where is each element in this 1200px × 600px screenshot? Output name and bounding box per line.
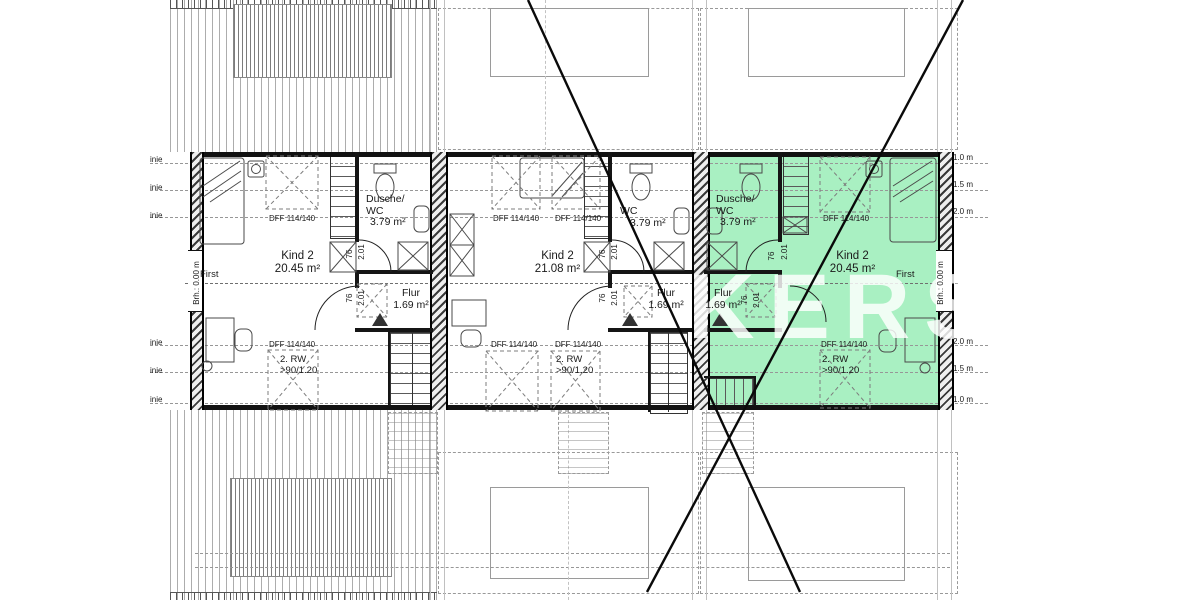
door-height-label: 2.01 <box>610 280 620 316</box>
breast-height-right: Brh.: 0.00 m <box>936 253 946 313</box>
hall-name: Flur <box>702 288 744 300</box>
bath-area: 3.79 m² <box>620 218 666 230</box>
bath-line1: Dusche/ <box>716 194 756 206</box>
room-name: Kind 2 <box>800 250 905 263</box>
ridge-label-right: First <box>896 270 914 281</box>
sink-left <box>414 206 429 232</box>
skylight-middle-top-2 <box>552 156 600 209</box>
skylight-middle-bottom-1 <box>486 351 538 411</box>
roof-height-label: 1.5 m <box>953 180 973 189</box>
room-name: Kind 2 <box>245 250 350 263</box>
room-label-middle: Kind 2 21.08 m² <box>505 250 610 275</box>
room-name: Kind 2 <box>505 250 610 263</box>
desk-left <box>202 318 252 371</box>
room-label-left: Kind 2 20.45 m² <box>245 250 350 275</box>
hall-label-left: Flur 1.69 m² <box>388 288 434 311</box>
breast-height-left: Brh.: 0.00 m <box>192 253 202 313</box>
bath-line1: Dusche/ <box>366 194 406 206</box>
bath-label-right: Dusche/ WC 3.79 m² <box>716 194 756 229</box>
room-area: 21.08 m² <box>505 263 610 276</box>
hall-label-right: Flur 1.69 m² <box>702 288 744 311</box>
roof-line-label: inie <box>150 155 178 164</box>
skylight-right-top <box>820 157 870 212</box>
sink-middle <box>674 208 689 234</box>
rw-line1: 2. RW <box>822 355 859 366</box>
closet-right <box>783 217 807 233</box>
roof-line-label: inie <box>150 338 178 347</box>
roof-height-label: 1.5 m <box>953 364 973 373</box>
room-area: 20.45 m² <box>800 263 905 276</box>
shower-left <box>398 242 428 270</box>
dff-label: DFF 114/140 <box>262 214 322 223</box>
hall-area: 1.69 m² <box>388 300 434 312</box>
rw-line1: 2. RW <box>556 355 593 366</box>
roof-line-label: inie <box>150 183 178 192</box>
rw-line2: >90/1.20 <box>280 366 317 377</box>
door-height-label: 2.01 <box>610 234 620 270</box>
desk-middle <box>452 300 486 347</box>
floor-plan: KERS Kind 2 20.45 m² Kind 2 21.08 m² Kin… <box>0 0 1200 600</box>
door-width-label: 76 <box>345 280 355 316</box>
bed-left <box>200 158 244 244</box>
escape-window-label-left: 2. RW >90/1.20 <box>280 355 317 376</box>
escape-window-label-right: 2. RW >90/1.20 <box>822 355 859 376</box>
door-height-label: 2.01 <box>780 234 790 270</box>
dff-label: DFF 114/140 <box>484 340 544 349</box>
hall-name: Flur <box>388 288 434 300</box>
door-width-label: 76 <box>598 236 608 272</box>
bed-middle <box>520 158 584 198</box>
door-height-label: 2.01 <box>357 234 367 270</box>
shower-middle <box>654 242 684 270</box>
door-width-label: 76 <box>598 280 608 316</box>
door-width-label: 76 <box>767 238 777 274</box>
roof-height-label: 2.0 m <box>953 337 973 346</box>
roof-height-label: 2.0 m <box>953 207 973 216</box>
hall-area: 1.69 m² <box>702 300 744 312</box>
room-area: 20.45 m² <box>245 263 350 276</box>
door-height-label: 2.01 <box>752 282 762 318</box>
bath-area: 3.79 m² <box>366 217 406 229</box>
dff-label: DFF 114/140 <box>262 340 322 349</box>
ridge-label-left: First <box>200 270 218 281</box>
door-height-label: 2.01 <box>357 280 367 316</box>
door-width-label: 76 <box>740 282 750 318</box>
room-label-right: Kind 2 20.45 m² <box>800 250 905 275</box>
door-width-label: 76 <box>345 236 355 272</box>
stair-arrow-middle <box>622 313 638 326</box>
escape-window-label-middle: 2. RW >90/1.20 <box>556 355 593 376</box>
dff-label: DFF 114/140 <box>816 214 876 223</box>
side-table-right <box>866 161 882 177</box>
toilet-middle <box>630 164 652 200</box>
hall-name: Flur <box>645 288 687 300</box>
rw-line2: >90/1.20 <box>822 366 859 377</box>
bath-area: 3.79 m² <box>716 217 756 229</box>
roof-line-label: inie <box>150 366 178 375</box>
roof-line-label: inie <box>150 211 178 220</box>
roof-height-label: 1.0 m <box>953 395 973 404</box>
skylight-left-top <box>266 156 318 209</box>
dff-label: DFF 114/140 <box>548 214 608 223</box>
hall-label-middle: Flur 1.69 m² <box>645 288 687 311</box>
hall-area: 1.69 m² <box>645 300 687 312</box>
bath-line1: WC <box>620 206 666 218</box>
dff-label: DFF 114/140 <box>814 340 874 349</box>
bed-right <box>890 158 936 242</box>
bath-label-left: Dusche/ WC 3.79 m² <box>366 194 406 229</box>
roof-height-label: 1.0 m <box>953 153 973 162</box>
dff-label: DFF 114/140 <box>486 214 546 223</box>
wardrobe-middle <box>450 214 474 276</box>
bath-label-middle: WC 3.79 m² <box>620 206 666 229</box>
rw-line2: >90/1.20 <box>556 366 593 377</box>
skylight-middle-top-1 <box>492 156 540 209</box>
rw-line1: 2. RW <box>280 355 317 366</box>
dff-label: DFF 114/140 <box>548 340 608 349</box>
roof-line-label: inie <box>150 395 178 404</box>
side-table-left <box>248 161 264 177</box>
